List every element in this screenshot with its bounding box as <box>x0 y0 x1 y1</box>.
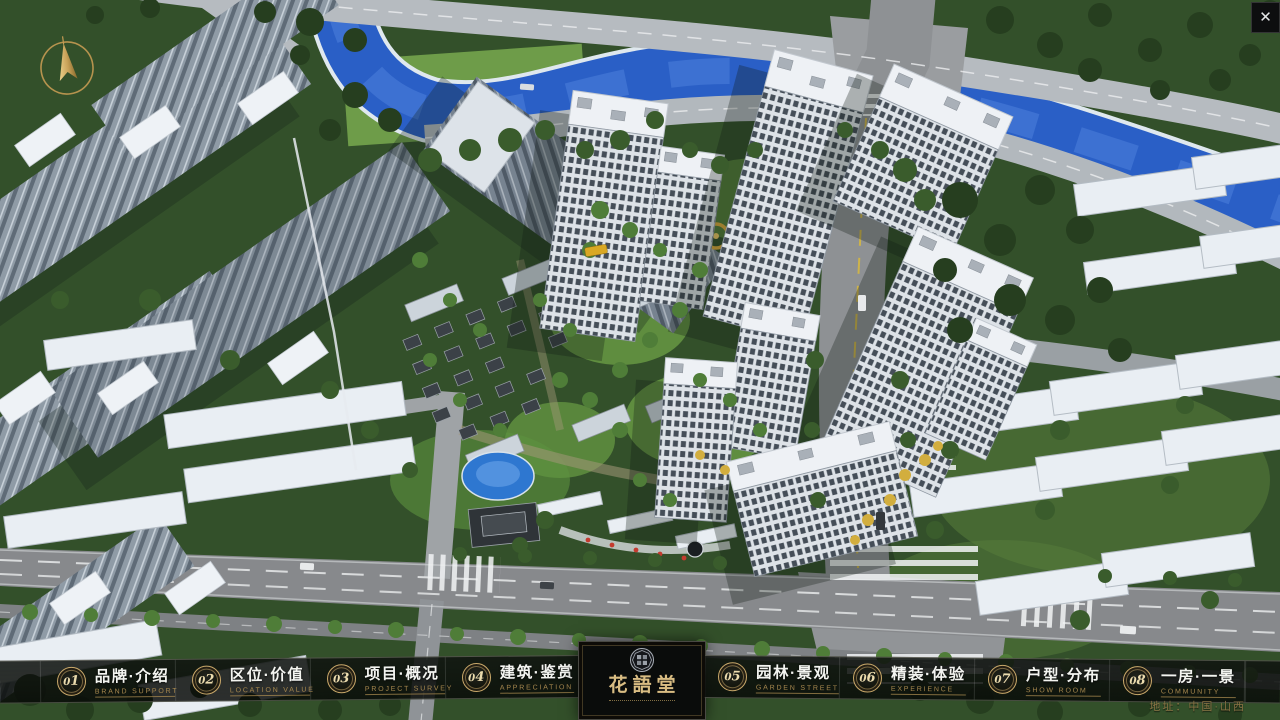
nav-number-badge: 02 <box>192 665 221 694</box>
close-button[interactable]: ✕ <box>1251 2 1280 33</box>
nav-item-architecture-appreciation[interactable]: 04 建筑·鉴赏APPRECIATION <box>446 656 581 698</box>
logo-title: 花語堂 <box>603 674 680 697</box>
nav-label-en: BRAND SUPPORT <box>95 688 175 698</box>
nav-number-badge: 08 <box>1123 666 1152 695</box>
bottom-nav-right: 05 园林·景观GARDEN STREET 06 精装·体验EXPERIENCE… <box>705 655 1280 704</box>
bottom-nav-left: 01 品牌·介绍BRAND SUPPORT 02 区位·价值LOCATION V… <box>0 655 580 704</box>
nav-number-badge: 06 <box>853 663 882 692</box>
nav-label-en: LOCATION VALUE <box>230 686 310 696</box>
nav-label-en: SHOW ROOM <box>1026 687 1101 697</box>
nav-number-badge: 04 <box>462 663 491 692</box>
project-address: 地址：中国·山西 <box>1149 698 1246 714</box>
nav-number: 04 <box>468 671 484 684</box>
logo-tagline-rule <box>609 700 675 701</box>
nav-label-zh: 区位·价值 <box>230 662 310 685</box>
nav-number: 02 <box>198 674 214 687</box>
nav-number-badge: 07 <box>988 665 1017 694</box>
nav-number: 06 <box>859 671 875 684</box>
nav-label-zh: 品牌·介绍 <box>95 664 175 687</box>
nav-label-zh: 园林·景观 <box>756 660 839 683</box>
nav-item-location-value[interactable]: 02 区位·价值LOCATION VALUE <box>176 659 311 701</box>
nav-label-en: GARDEN STREET <box>756 684 839 694</box>
nav-number-badge: 03 <box>327 664 356 693</box>
nav-label-en: APPRECIATION <box>500 684 575 694</box>
presentation-window: ✕ 01 品牌·介绍BRAND SUPPORT 02 区位·价值LOCATION… <box>0 0 1280 720</box>
project-logo: 花語堂 <box>578 641 706 720</box>
nav-label-zh: 建筑·鉴赏 <box>500 660 575 683</box>
nav-number: 01 <box>63 675 79 688</box>
nav-label-zh: 项目·概况 <box>365 661 445 684</box>
nav-item-room-view[interactable]: 08 一房·一景COMMUNITY <box>1110 660 1245 702</box>
nav-item-brand-intro[interactable]: 01 品牌·介绍BRAND SUPPORT <box>41 660 176 702</box>
nav-label-en: COMMUNITY <box>1161 688 1236 698</box>
nav-item-interior-experience[interactable]: 06 精装·体验EXPERIENCE <box>840 657 975 699</box>
nav-number: 07 <box>994 673 1010 686</box>
nav-number: 08 <box>1129 674 1145 687</box>
nav-item-project-overview[interactable]: 03 项目·概况PROJECT SURVEY <box>311 657 446 699</box>
nav-spacer <box>0 661 41 702</box>
nav-label-en: EXPERIENCE <box>891 686 966 696</box>
masterplan-rendering[interactable] <box>0 0 1280 720</box>
seal-emblem-icon <box>629 647 655 673</box>
nav-number-badge: 05 <box>718 662 747 691</box>
nav-number: 03 <box>333 672 349 685</box>
nav-spacer <box>1245 661 1280 702</box>
nav-number-badge: 01 <box>57 667 86 696</box>
nav-label-zh: 精装·体验 <box>891 662 966 685</box>
nav-label-zh: 户型·分布 <box>1026 663 1101 686</box>
nav-item-floorplan-distribution[interactable]: 07 户型·分布SHOW ROOM <box>975 659 1110 701</box>
nav-label-en: PROJECT SURVEY <box>365 685 445 695</box>
nav-item-garden-landscape[interactable]: 05 园林·景观GARDEN STREET <box>705 656 840 698</box>
nav-number: 05 <box>724 670 740 683</box>
nav-label-zh: 一房·一景 <box>1161 664 1236 687</box>
